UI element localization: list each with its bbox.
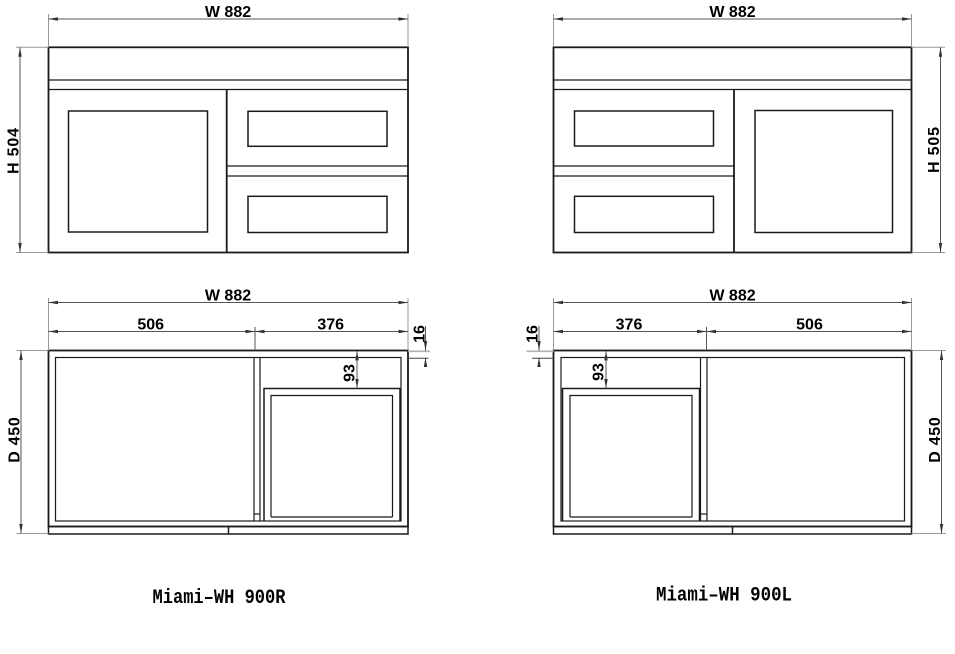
svg-text:D 450: D 450 bbox=[7, 417, 24, 463]
svg-text:506: 506 bbox=[796, 317, 823, 334]
svg-text:Miami–WH 900R: Miami–WH 900R bbox=[153, 587, 287, 610]
svg-text:506: 506 bbox=[137, 317, 164, 334]
svg-text:D 450: D 450 bbox=[927, 417, 944, 463]
svg-text:93: 93 bbox=[591, 363, 608, 381]
svg-text:93: 93 bbox=[342, 364, 359, 382]
svg-text:W 882: W 882 bbox=[709, 4, 755, 21]
svg-text:W 882: W 882 bbox=[205, 288, 251, 305]
svg-text:376: 376 bbox=[616, 317, 643, 334]
svg-text:H 505: H 505 bbox=[926, 127, 943, 173]
svg-text:16: 16 bbox=[525, 325, 542, 343]
svg-text:16: 16 bbox=[412, 325, 429, 343]
svg-text:376: 376 bbox=[317, 317, 344, 334]
svg-text:W 882: W 882 bbox=[709, 288, 755, 305]
svg-text:W 882: W 882 bbox=[205, 4, 251, 21]
svg-text:H 504: H 504 bbox=[6, 128, 23, 174]
svg-text:Miami–WH 900L: Miami–WH 900L bbox=[656, 585, 792, 608]
